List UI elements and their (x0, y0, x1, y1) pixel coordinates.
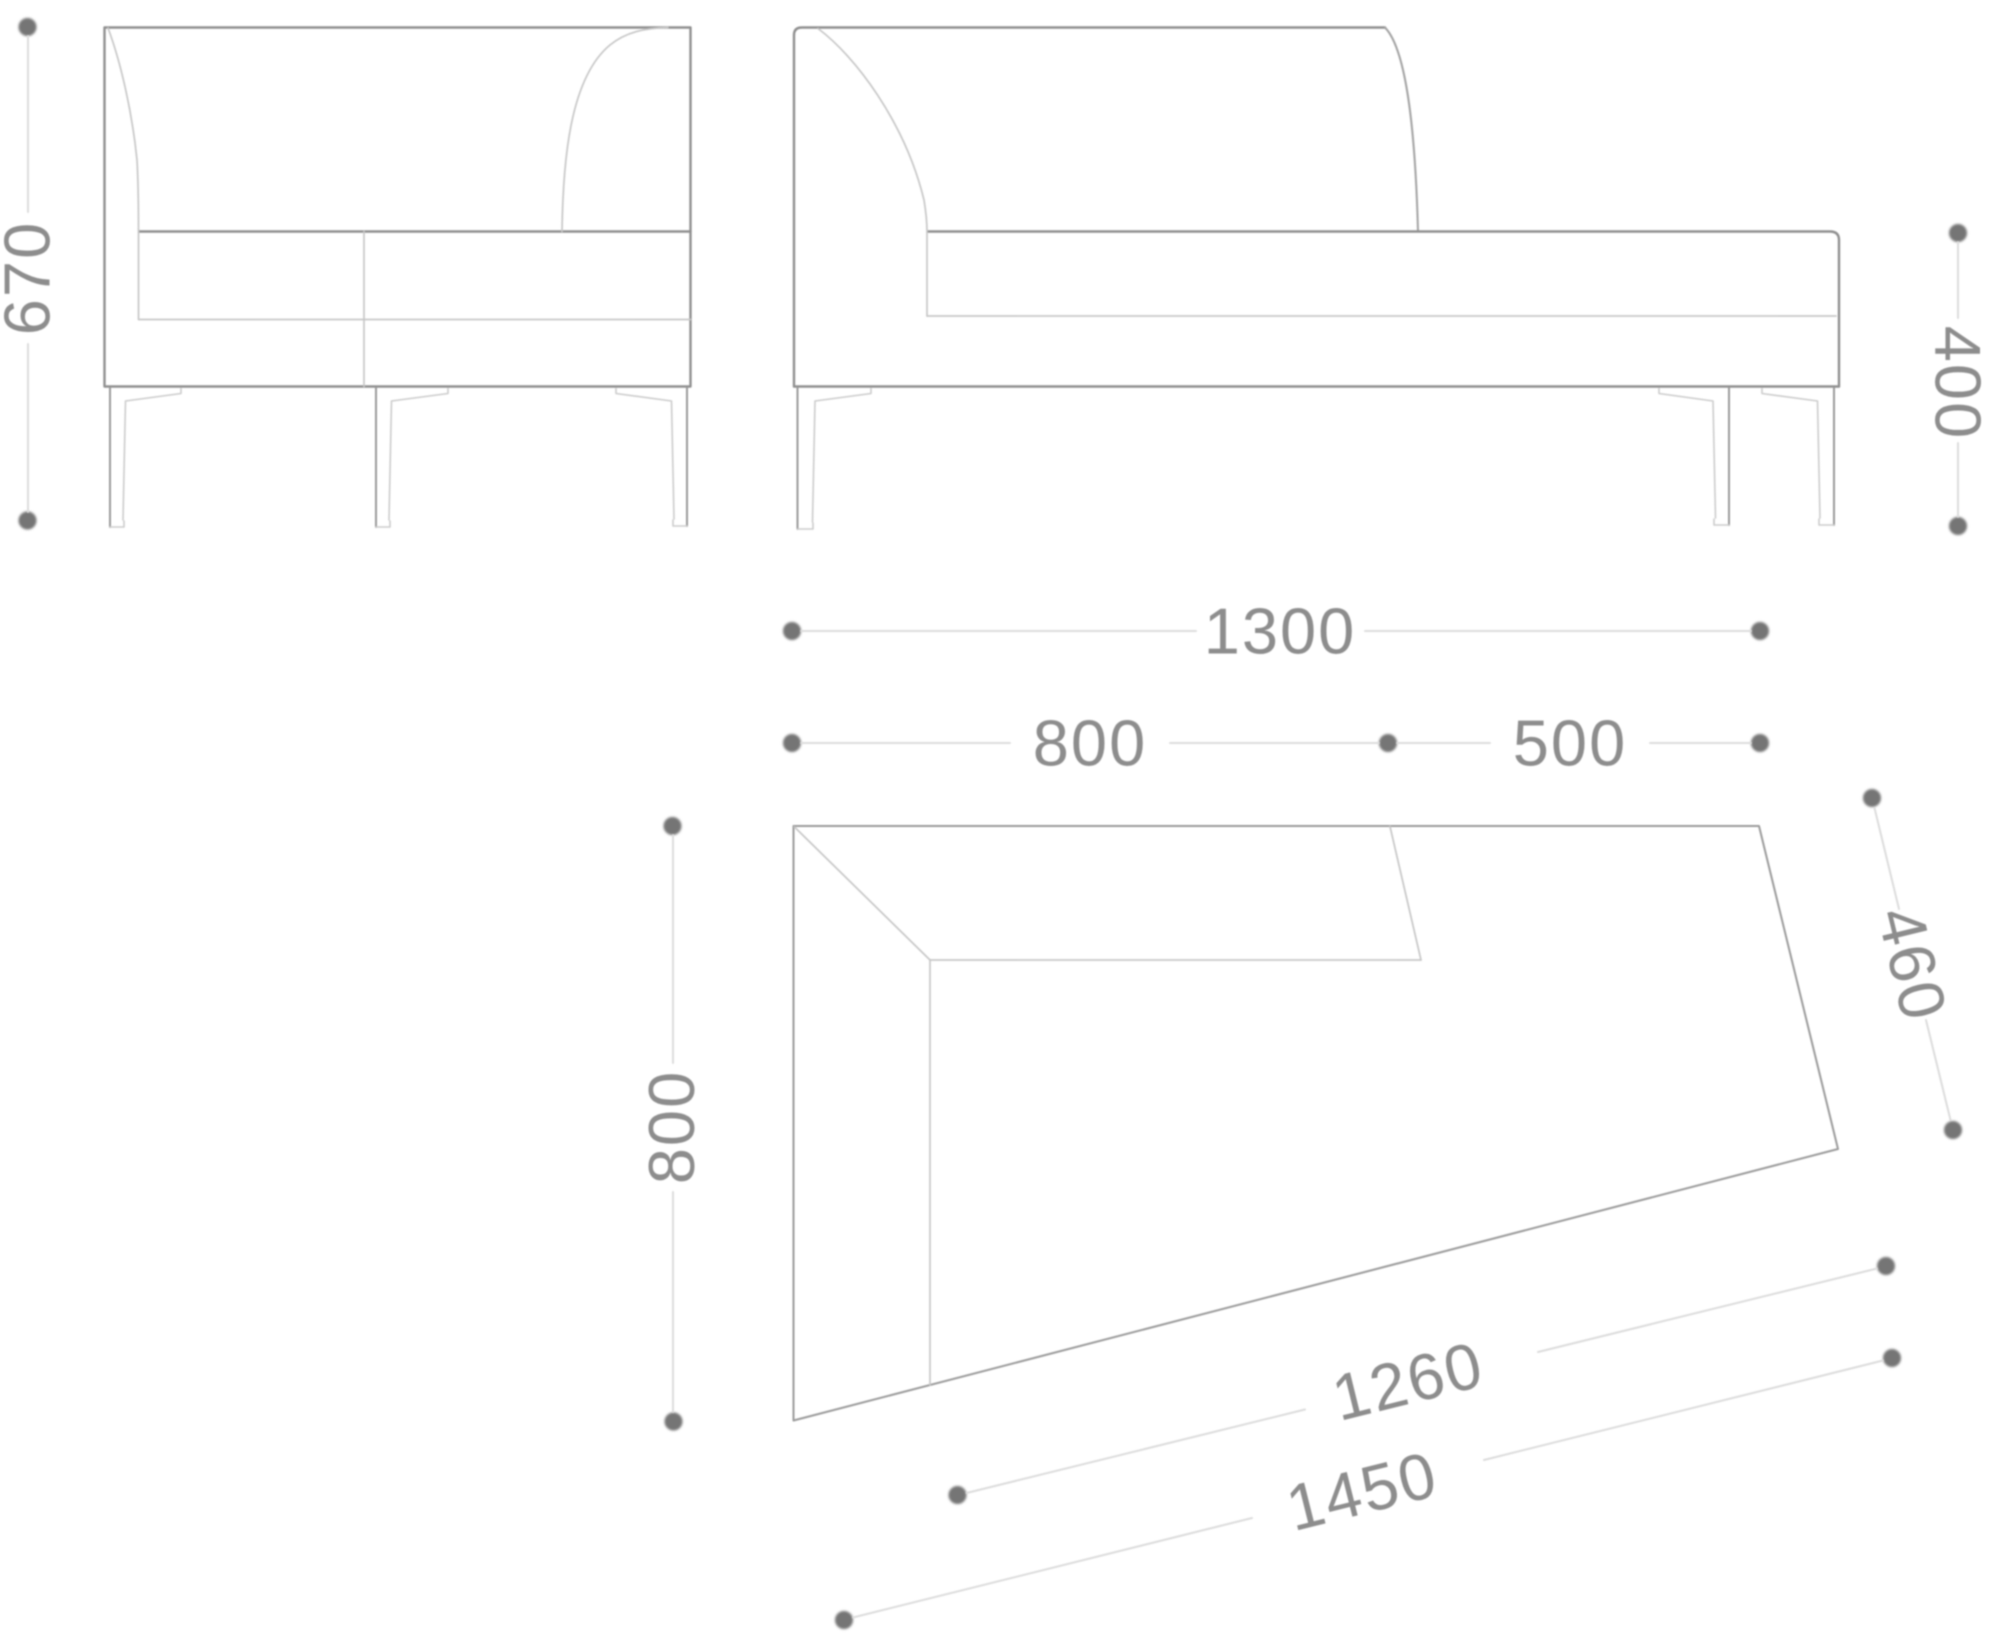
svg-text:800: 800 (635, 1070, 708, 1184)
svg-text:1300: 1300 (1204, 595, 1357, 668)
svg-text:1450: 1450 (1279, 1437, 1445, 1545)
svg-text:460: 460 (1863, 900, 1961, 1028)
svg-text:1260: 1260 (1325, 1327, 1491, 1434)
svg-text:670: 670 (0, 221, 64, 335)
svg-text:800: 800 (1033, 707, 1147, 780)
svg-text:500: 500 (1513, 707, 1627, 780)
svg-text:400: 400 (1922, 326, 1995, 440)
